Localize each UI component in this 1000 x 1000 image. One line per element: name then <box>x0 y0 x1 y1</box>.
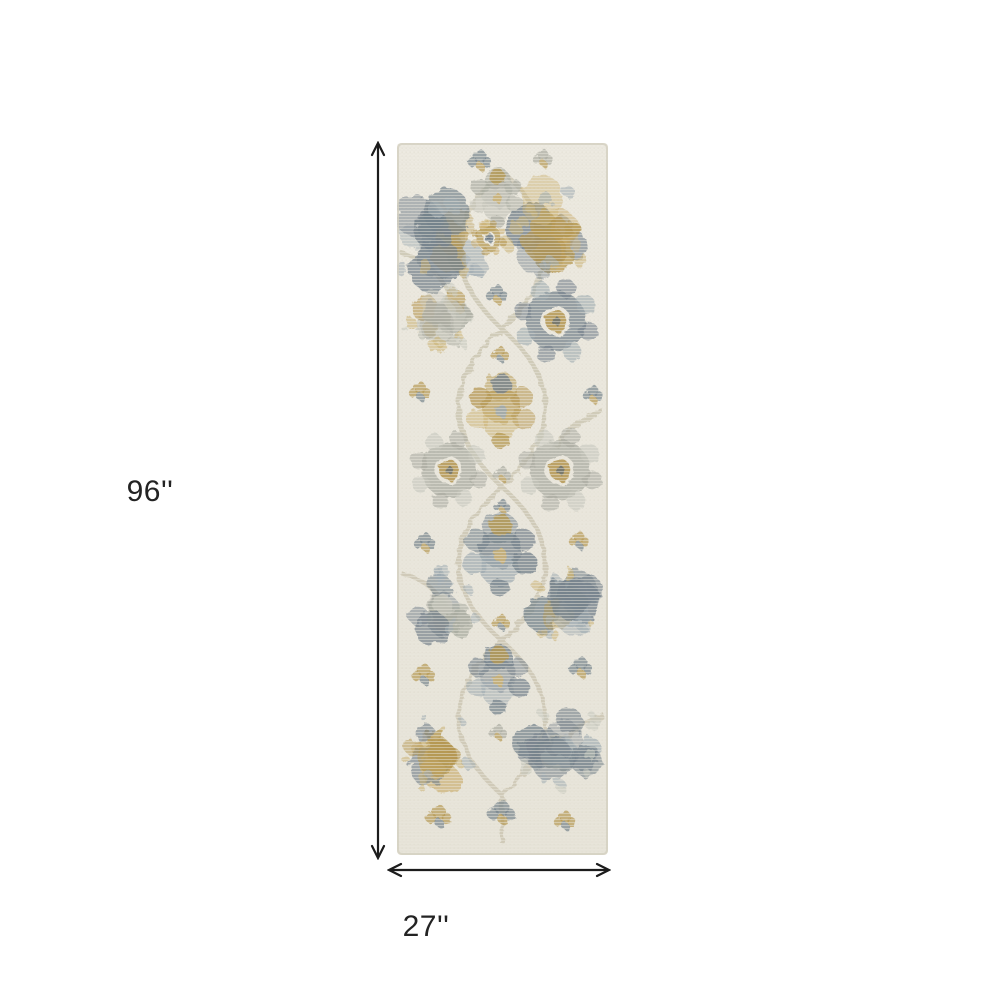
vertical-dimension-arrow <box>369 141 387 860</box>
horizontal-dimension-arrow <box>387 861 611 879</box>
rug-pattern-svg <box>397 143 608 855</box>
dimension-diagram: 96'' 27'' <box>0 0 1000 1000</box>
rug-image <box>397 143 608 855</box>
height-dimension-label: 96'' <box>105 477 195 507</box>
width-dimension-label: 27'' <box>381 912 471 942</box>
